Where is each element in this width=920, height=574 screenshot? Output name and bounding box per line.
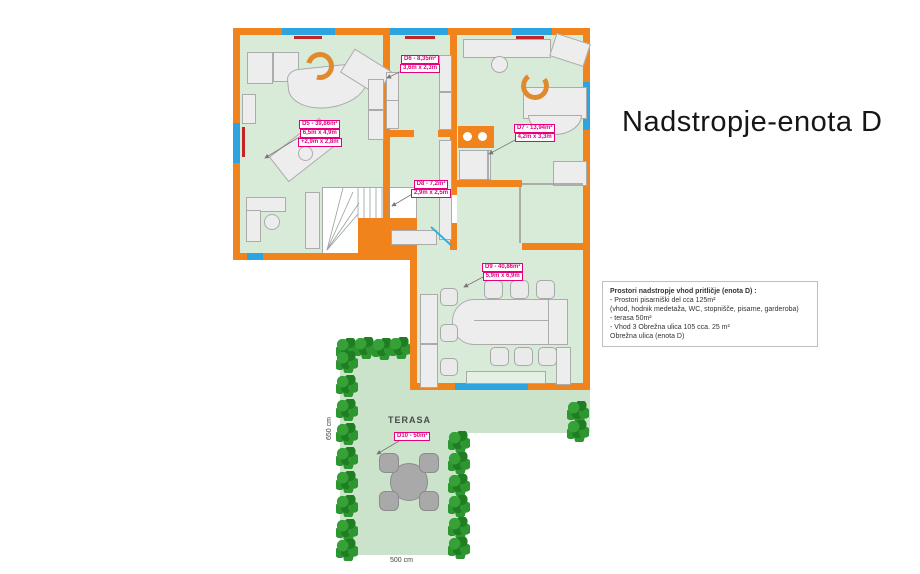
- tree-icon: [336, 351, 358, 373]
- room-d10-area: D10 - 50m²: [394, 432, 430, 441]
- furniture-chair: [440, 288, 458, 306]
- furniture-cabinet: [439, 55, 452, 92]
- window: [390, 28, 448, 35]
- terrace-chair: [379, 453, 399, 473]
- wc-sink: [478, 132, 487, 141]
- furniture-cabinet: [368, 79, 384, 110]
- dimension-left: 650 cm: [326, 417, 333, 440]
- info-line: - Vhod 3 Obrežna ulica 105 cca. 25 m²: [610, 323, 810, 332]
- furniture-chair: [440, 358, 458, 376]
- furniture-cabinet: [386, 100, 399, 129]
- tree-icon: [336, 495, 358, 517]
- furniture-cabinet: [305, 192, 320, 249]
- furniture-chair: [536, 280, 555, 299]
- room-d6-area: D6 - 8,35m²: [401, 55, 439, 64]
- conference-table-ext: [548, 299, 568, 345]
- wall: [438, 130, 450, 137]
- room-label-d8: D8 - 7,2m² 2,9m x 2,5m: [411, 180, 451, 198]
- terrace-chair: [419, 453, 439, 473]
- page-title: Nadstropje-enota D: [622, 106, 882, 139]
- tree-icon: [448, 474, 470, 496]
- info-line: (vhod, hodnik medetaža, WC, stopnišče, p…: [610, 305, 810, 314]
- room-label-d10: D10 - 50m²: [394, 432, 430, 441]
- terrace-floor-strip: [410, 390, 590, 433]
- furniture-cabinet: [420, 294, 438, 344]
- furniture-desk: [246, 210, 261, 242]
- furniture-cabinet: [420, 344, 438, 388]
- wc-stall: [459, 150, 491, 180]
- furniture-chair: [264, 214, 280, 230]
- info-heading: Prostori nadstropje vhod pritličje (enot…: [610, 287, 810, 296]
- threshold: [466, 371, 546, 384]
- terrace-chair: [379, 491, 399, 511]
- terrace-chair: [419, 491, 439, 511]
- tree-icon: [448, 495, 470, 517]
- tree-icon: [448, 452, 470, 474]
- tree-icon: [336, 471, 358, 493]
- window: [455, 383, 528, 390]
- tree-icon: [567, 420, 589, 442]
- furniture-cabinet: [242, 94, 256, 124]
- room-label-d9: D9 - 40,86m² 5,9m x 6,9m: [482, 263, 523, 281]
- furniture-chair: [491, 56, 508, 73]
- furniture-chair: [514, 347, 533, 366]
- furniture-cabinet: [368, 110, 384, 140]
- info-line: Obrežna ulica (enota D): [610, 332, 810, 341]
- room-d7-area: D7 - 13,94m²: [514, 124, 555, 133]
- room-d9-dims: 5,9m x 6,9m: [483, 272, 523, 281]
- floor-plan-page: D5 - 39,86m² 6,5m x 4,9m +2,9m x 2,8m D6…: [0, 0, 920, 574]
- furniture-desk: [391, 230, 437, 245]
- room-label-d7: D7 - 13,94m² 4,2m x 3,3m: [514, 124, 555, 142]
- furniture-desk: [553, 161, 587, 186]
- furniture-chair: [298, 146, 313, 161]
- window: [282, 28, 335, 35]
- room-d5-dims: 6,5m x 4,9m: [300, 129, 340, 138]
- furniture-chair: [440, 324, 458, 342]
- info-box: Prostori nadstropje vhod pritličje (enot…: [602, 281, 818, 347]
- radiator: [242, 127, 245, 157]
- wall: [390, 130, 414, 137]
- room-d5-area: D5 - 39,86m²: [299, 120, 340, 129]
- dimension-bottom: 500 cm: [390, 557, 413, 564]
- window: [512, 28, 552, 35]
- table-divider: [474, 320, 548, 321]
- room-d8-area: D8 - 7,2m²: [414, 180, 449, 189]
- room-label-d6: D6 - 8,35m² 3,6m x 2,3m: [400, 55, 440, 73]
- tree-icon: [336, 399, 358, 421]
- tree-icon: [336, 447, 358, 469]
- tree-icon: [448, 431, 470, 453]
- tree-icon: [389, 337, 411, 359]
- info-line: - terasa 50m²: [610, 314, 810, 323]
- room-d8-dims: 2,9m x 2,5m: [411, 189, 451, 198]
- furniture-cabinet: [439, 92, 452, 130]
- room-d9-area: D9 - 40,86m²: [482, 263, 523, 272]
- room-d6-dims: 3,6m x 2,3m: [400, 64, 440, 73]
- wc-sink: [463, 132, 472, 141]
- wall: [450, 180, 522, 187]
- wall: [410, 250, 417, 390]
- window: [233, 123, 240, 163]
- tree-icon: [336, 539, 358, 561]
- tree-icon: [336, 519, 358, 541]
- radiator: [294, 36, 322, 39]
- room-label-d5: D5 - 39,86m² 6,5m x 4,9m +2,9m x 2,8m: [298, 120, 342, 147]
- furniture-chair: [538, 347, 557, 366]
- info-line: - Prostori pisarniški del cca 125m²: [610, 296, 810, 305]
- room-d7-dims: 4,2m x 3,3m: [515, 133, 555, 142]
- furniture-cabinet: [556, 347, 571, 385]
- furniture-shelf: [247, 52, 273, 84]
- furniture-chair: [510, 280, 529, 299]
- furniture-chair: [490, 347, 509, 366]
- tree-icon: [448, 537, 470, 559]
- furniture-chair: [484, 280, 503, 299]
- radiator: [405, 36, 435, 39]
- terrace-title: TERASA: [388, 415, 431, 425]
- tree-icon: [336, 423, 358, 445]
- conference-table: [452, 299, 550, 345]
- window: [247, 253, 263, 260]
- tree-icon: [336, 375, 358, 397]
- tree-icon: [448, 517, 470, 539]
- room-d5-dims2: +2,9m x 2,8m: [298, 138, 342, 147]
- wall: [522, 243, 583, 250]
- furniture-cabinet: [386, 72, 399, 101]
- furniture-desk: [463, 39, 551, 58]
